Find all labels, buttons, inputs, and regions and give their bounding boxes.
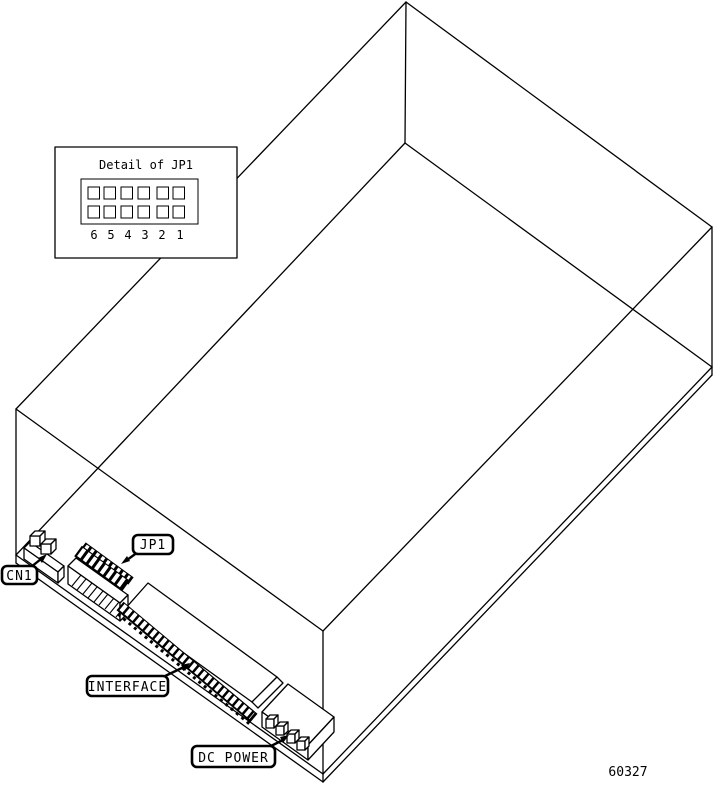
jp1-callout: JP1: [121, 535, 173, 564]
diagram-canvas: Detail of JP1 6 5 4 3 2 1 CN1: [0, 0, 714, 787]
hardware-connector-diagram: Detail of JP1 6 5 4 3 2 1 CN1: [0, 0, 714, 787]
pin-number-5: 5: [107, 228, 114, 242]
pin-number-2: 2: [158, 228, 165, 242]
chassis-wireframe: [16, 2, 712, 774]
dc-power-label: DC POWER: [198, 751, 269, 766]
interface-label: INTERFACE: [88, 680, 167, 695]
jp1-label: JP1: [140, 538, 166, 553]
cn1-label: CN1: [6, 569, 32, 584]
inset-title: Detail of JP1: [99, 158, 193, 172]
jp1-arrowhead: [121, 556, 130, 564]
jp1-detail-inset: Detail of JP1 6 5 4 3 2 1: [55, 147, 237, 258]
pin-number-1: 1: [176, 228, 183, 242]
pin-number-6: 6: [90, 228, 97, 242]
interface-edge-connector: [118, 583, 283, 726]
pin-number-3: 3: [141, 228, 148, 242]
drawing-number: 60327: [608, 765, 647, 780]
pin-number-4: 4: [124, 228, 131, 242]
